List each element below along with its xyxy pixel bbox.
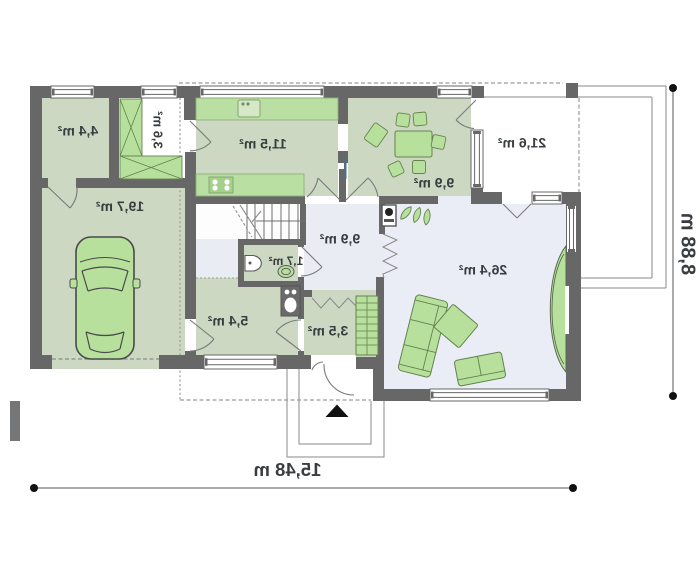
svg-text:9,9 m²: 9,9 m² <box>319 231 360 247</box>
svg-text:15,48 m: 15,48 m <box>254 459 322 480</box>
svg-text:5,4 m²: 5,4 m² <box>207 313 248 329</box>
svg-text:3,5 m²: 3,5 m² <box>307 323 348 339</box>
svg-text:8,88 m: 8,88 m <box>677 213 699 275</box>
svg-text:9,9 m²: 9,9 m² <box>413 175 454 191</box>
svg-text:1,7 m²: 1,7 m² <box>269 254 304 268</box>
svg-text:26,4 m²: 26,4 m² <box>459 262 508 278</box>
svg-text:11,5 m²: 11,5 m² <box>239 136 287 152</box>
svg-text:21,6 m²: 21,6 m² <box>498 135 547 151</box>
svg-text:3,6 m²: 3,6 m² <box>151 111 166 149</box>
svg-text:19,7 m²: 19,7 m² <box>96 198 145 214</box>
svg-text:4,4 m²: 4,4 m² <box>57 123 98 139</box>
